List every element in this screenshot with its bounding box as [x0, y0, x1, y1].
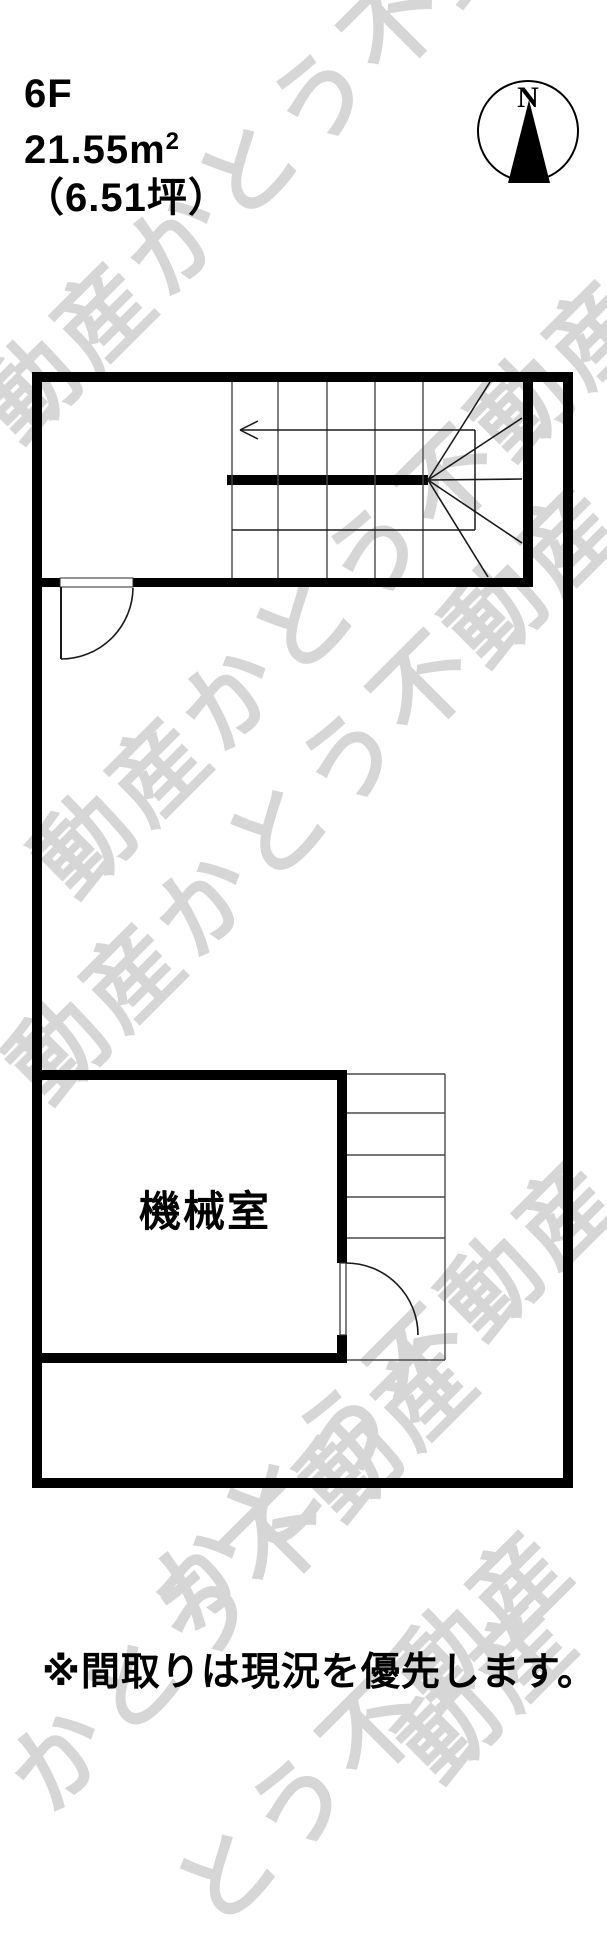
floor-label: 6F [24, 70, 229, 118]
wall-right [563, 372, 573, 1488]
stairwell-bottom-wall [133, 578, 533, 587]
disclaimer-note: ※間取りは現況を優先します。 [42, 1650, 597, 1696]
stair-arrowhead [240, 430, 258, 439]
stairwell-bottom-wall-left-stub [42, 578, 60, 587]
stairwell-walls [42, 382, 533, 587]
machine-room-bottom-wall [32, 1353, 347, 1363]
north-arrow-icon [508, 100, 550, 183]
door-swing-arc [346, 1263, 418, 1335]
floorplan-page: { "header": { "floor": "6F", "area_sqm_v… [0, 0, 607, 1776]
machine-room-top-wall [32, 1070, 347, 1080]
wall-top [32, 372, 573, 382]
machine-room-door [338, 1263, 418, 1335]
door-leaf [340, 1263, 346, 1335]
stairwell-door [60, 578, 133, 659]
floorplan-drawing [0, 0, 607, 1776]
wall-left [32, 372, 42, 1488]
square-superscript: 2 [166, 128, 179, 155]
winder-tread-line [428, 382, 490, 480]
area-sqm-label: 21.55m2 [24, 118, 229, 174]
door-opening [60, 578, 133, 587]
plan-header: 6F 21.55m2 （6.51坪） [24, 70, 229, 222]
door-swing-arc [61, 588, 133, 659]
wall-bottom [32, 1478, 573, 1488]
stair-arrowhead [240, 421, 258, 430]
area-tsubo-label: （6.51坪） [24, 174, 229, 222]
machine-room-label: 機械室 [139, 1189, 271, 1235]
outer-walls [32, 372, 573, 1488]
stairwell-inner-wall [523, 382, 533, 587]
machine-room-right-wall-upper [337, 1080, 347, 1263]
north-compass-icon: N [477, 80, 579, 182]
lower-stairs [347, 1074, 445, 1360]
winder-tread-line [428, 480, 488, 577]
